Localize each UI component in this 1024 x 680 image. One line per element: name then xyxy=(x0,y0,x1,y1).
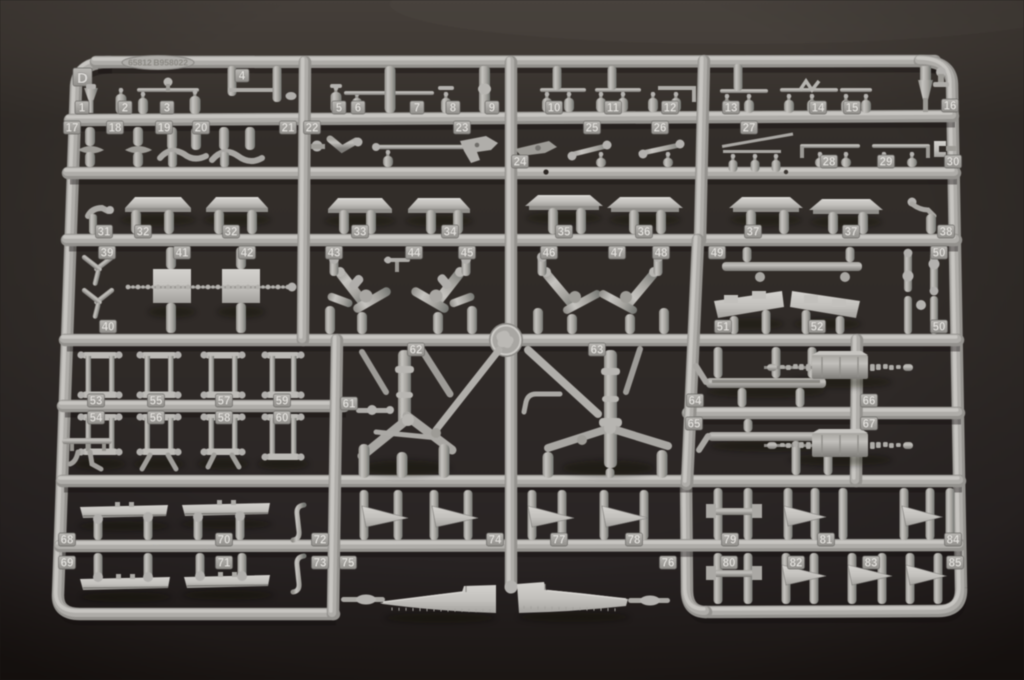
svg-text:17: 17 xyxy=(66,122,79,134)
svg-text:18: 18 xyxy=(109,122,122,134)
svg-text:85: 85 xyxy=(949,557,962,569)
svg-text:77: 77 xyxy=(553,534,566,546)
svg-text:2: 2 xyxy=(122,102,128,114)
svg-text:69: 69 xyxy=(61,557,74,569)
svg-text:57: 57 xyxy=(218,395,231,407)
svg-text:7: 7 xyxy=(414,102,420,114)
svg-text:4: 4 xyxy=(239,70,246,82)
svg-text:20: 20 xyxy=(195,122,208,134)
svg-text:D: D xyxy=(77,70,88,87)
svg-text:78: 78 xyxy=(628,534,641,546)
svg-text:61: 61 xyxy=(343,398,356,410)
svg-text:70: 70 xyxy=(218,534,231,546)
svg-text:22: 22 xyxy=(306,122,319,134)
svg-text:65812 B958022: 65812 B958022 xyxy=(128,58,188,68)
svg-text:59: 59 xyxy=(276,395,289,407)
svg-text:27: 27 xyxy=(743,122,756,134)
svg-text:49: 49 xyxy=(711,247,724,259)
svg-text:79: 79 xyxy=(724,534,737,546)
svg-text:34: 34 xyxy=(444,226,457,238)
svg-text:37: 37 xyxy=(747,226,760,238)
svg-text:13: 13 xyxy=(725,102,738,114)
svg-text:23: 23 xyxy=(456,122,469,134)
svg-text:14: 14 xyxy=(812,102,825,114)
svg-text:56: 56 xyxy=(150,412,163,424)
svg-text:40: 40 xyxy=(102,321,115,333)
svg-text:31: 31 xyxy=(98,226,111,238)
svg-text:8: 8 xyxy=(450,102,457,114)
svg-text:48: 48 xyxy=(655,247,668,259)
svg-text:37: 37 xyxy=(845,226,858,238)
svg-text:25: 25 xyxy=(586,122,599,134)
svg-text:73: 73 xyxy=(314,557,327,569)
svg-text:21: 21 xyxy=(282,122,295,134)
svg-text:65: 65 xyxy=(688,418,701,430)
svg-text:51: 51 xyxy=(717,321,730,333)
svg-text:74: 74 xyxy=(489,534,502,546)
svg-text:38: 38 xyxy=(940,226,953,238)
svg-text:72: 72 xyxy=(314,534,327,546)
svg-text:53: 53 xyxy=(90,395,103,407)
svg-text:5: 5 xyxy=(336,102,343,114)
svg-text:63: 63 xyxy=(591,344,604,356)
svg-text:42: 42 xyxy=(241,247,254,259)
svg-text:11: 11 xyxy=(607,102,620,114)
svg-text:16: 16 xyxy=(944,100,957,112)
svg-text:83: 83 xyxy=(865,557,878,569)
svg-text:43: 43 xyxy=(328,247,341,259)
svg-text:44: 44 xyxy=(408,247,421,259)
svg-text:24: 24 xyxy=(514,156,527,168)
svg-text:6: 6 xyxy=(355,102,361,114)
svg-text:30: 30 xyxy=(947,156,960,168)
svg-text:10: 10 xyxy=(548,102,561,114)
svg-text:60: 60 xyxy=(276,412,289,424)
svg-text:12: 12 xyxy=(664,102,677,114)
svg-text:3: 3 xyxy=(164,102,170,114)
svg-text:28: 28 xyxy=(823,156,836,168)
svg-text:45: 45 xyxy=(461,247,474,259)
svg-text:15: 15 xyxy=(846,102,859,114)
svg-text:58: 58 xyxy=(218,412,231,424)
svg-text:52: 52 xyxy=(811,321,824,333)
svg-text:82: 82 xyxy=(790,557,803,569)
svg-text:76: 76 xyxy=(662,557,675,569)
svg-text:32: 32 xyxy=(225,226,238,238)
svg-text:1: 1 xyxy=(79,102,86,114)
svg-text:55: 55 xyxy=(150,395,163,407)
svg-text:84: 84 xyxy=(947,534,960,546)
svg-text:26: 26 xyxy=(654,122,667,134)
svg-text:71: 71 xyxy=(218,557,231,569)
svg-text:46: 46 xyxy=(543,247,556,259)
svg-text:80: 80 xyxy=(723,557,736,569)
svg-text:64: 64 xyxy=(689,395,702,407)
svg-text:50: 50 xyxy=(933,321,946,333)
svg-text:9: 9 xyxy=(489,102,495,114)
svg-text:54: 54 xyxy=(90,412,103,424)
svg-text:50: 50 xyxy=(933,247,946,259)
svg-text:68: 68 xyxy=(61,534,74,546)
svg-text:41: 41 xyxy=(176,247,189,259)
svg-text:67: 67 xyxy=(863,418,876,430)
svg-text:35: 35 xyxy=(558,226,571,238)
svg-text:19: 19 xyxy=(158,122,171,134)
svg-text:62: 62 xyxy=(410,344,423,356)
svg-text:47: 47 xyxy=(611,247,624,259)
svg-text:36: 36 xyxy=(638,226,651,238)
svg-text:32: 32 xyxy=(137,226,150,238)
svg-text:33: 33 xyxy=(354,226,367,238)
svg-text:81: 81 xyxy=(820,534,833,546)
svg-text:66: 66 xyxy=(863,395,876,407)
svg-text:75: 75 xyxy=(342,557,355,569)
svg-text:29: 29 xyxy=(880,156,893,168)
svg-text:39: 39 xyxy=(101,247,114,259)
